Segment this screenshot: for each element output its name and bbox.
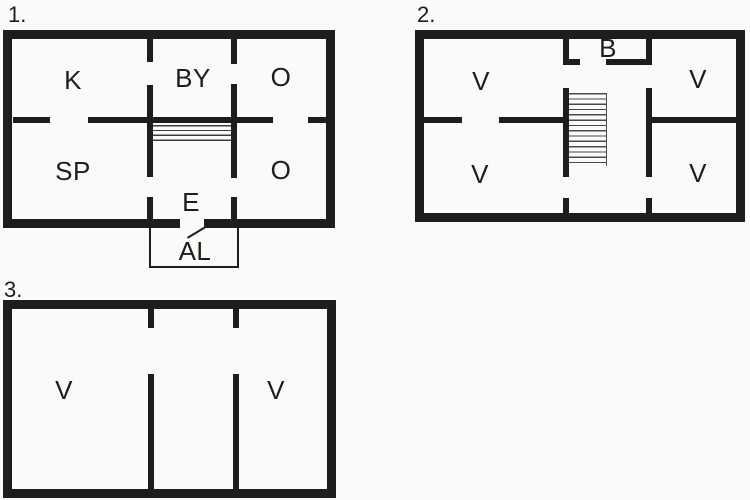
room-label-v-top-right: V: [689, 66, 707, 92]
plan-3-wall-v1-lower: [148, 374, 154, 489]
room-label-by: BY: [175, 65, 211, 91]
room-label-v-bottom-left: V: [471, 161, 489, 187]
plan-1-wall-v1-upper: [147, 39, 153, 62]
plan-2-wall-h-right: [652, 117, 736, 123]
room-label-v-right: V: [267, 377, 285, 403]
room-label-b: B: [599, 35, 617, 61]
plan-1-number: 1.: [8, 4, 26, 26]
room-label-o-upper: O: [271, 64, 292, 90]
room-label-k: K: [64, 67, 82, 93]
plan-1-wall-v1-lower: [147, 197, 153, 219]
plan-2-wall-v1-lower: [563, 198, 569, 213]
plan-1-wall-h-right: [308, 117, 326, 123]
room-label-v-top-left: V: [472, 68, 490, 94]
room-label-e: E: [182, 189, 200, 215]
plan-2-wall-v2-middle: [646, 88, 652, 177]
plan-3-outer-wall: [3, 300, 336, 498]
plan-1-staircase: [153, 125, 231, 144]
plan-2-staircase: [569, 93, 607, 166]
room-label-v-bottom-right: V: [689, 160, 707, 186]
plan-2-wall-h-left-b: [499, 117, 563, 123]
plan-3-wall-v2-upper: [233, 309, 239, 328]
plan-3-wall-v2-lower: [233, 374, 239, 489]
room-label-o-lower: O: [271, 157, 292, 183]
plan-1-wall-h-middle: [88, 117, 273, 123]
plan-2-wall-v2-lower: [646, 198, 652, 213]
plan-1-wall-h-left: [13, 117, 50, 123]
plan-1-wall-v2-lower: [231, 197, 237, 219]
plan-2-wall-h-left-a: [424, 117, 462, 123]
plan-1-wall-v2-upper: [231, 39, 237, 64]
plan-2-b-wall-bottom-left: [563, 59, 580, 65]
plan-3-wall-v1-upper: [148, 309, 154, 328]
plan-3-number: 3.: [4, 279, 22, 301]
plan-1-wall-v2-middle: [231, 84, 237, 178]
room-label-sp: SP: [55, 158, 91, 184]
floor-plans-canvas: 1. K BY O SP O E AL 2.: [0, 0, 750, 500]
plan-2-number: 2.: [417, 4, 435, 26]
room-label-al: AL: [179, 238, 212, 264]
room-label-v-left: V: [55, 377, 73, 403]
